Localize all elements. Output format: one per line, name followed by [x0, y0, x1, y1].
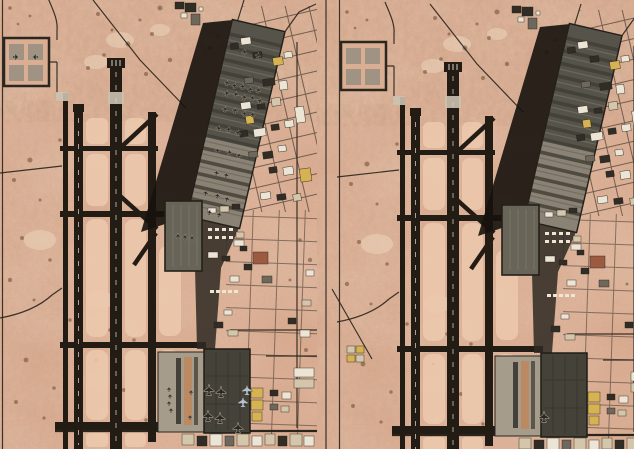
satellite-panel-before	[0, 0, 317, 449]
satellite-panel-after	[317, 0, 634, 449]
satellite-comparison	[0, 0, 634, 449]
